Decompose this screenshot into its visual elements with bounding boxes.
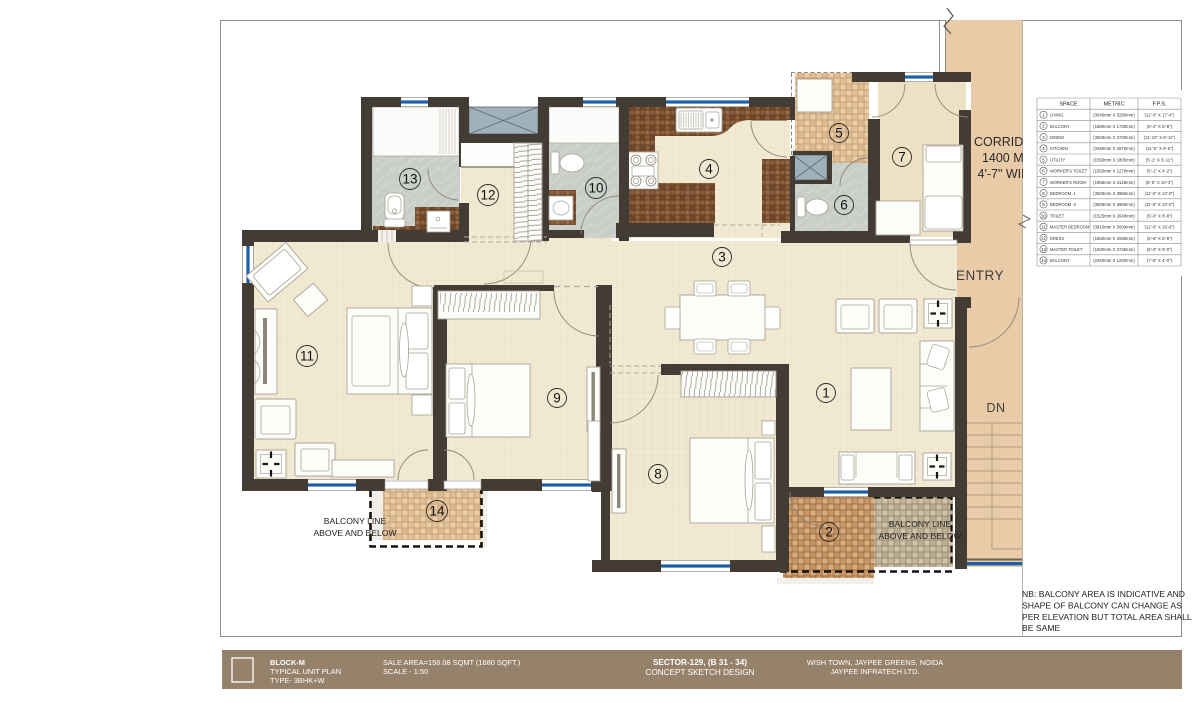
svg-text:DINING: DINING <box>1050 135 1064 140</box>
svg-text:NB: BALCONY AREA IS INDICATIVE: NB: BALCONY AREA IS INDICATIVE AND <box>1022 589 1185 599</box>
svg-text:MASTER BEDROOM: MASTER BEDROOM <box>1050 225 1090 230</box>
svg-text:(6'-0" X 9'-0"): (6'-0" X 9'-0") <box>1147 247 1173 252</box>
svg-text:(1880mm X 1730mm): (1880mm X 1730mm) <box>1093 124 1135 129</box>
svg-text:(5'-5" X 6'-9"): (5'-5" X 6'-9") <box>1147 236 1173 241</box>
svg-text:SALE AREA=156.08 SQMT (1680 SQ: SALE AREA=156.08 SQMT (1680 SQFT.) <box>383 658 520 667</box>
svg-text:(5'-1" X 5'-11"): (5'-1" X 5'-11") <box>1146 157 1174 162</box>
svg-text:(5'-1" X 4'-2"): (5'-1" X 4'-2") <box>1147 169 1173 174</box>
svg-text:BE SAME: BE SAME <box>1022 623 1060 633</box>
svg-text:(6'-2" X 5'-8"): (6'-2" X 5'-8") <box>1147 124 1173 129</box>
svg-text:(1830mm X 2745mm): (1830mm X 2745mm) <box>1093 247 1135 252</box>
svg-text:TYPICAL UNIT PLAN: TYPICAL UNIT PLAN <box>270 667 341 676</box>
svg-text:14: 14 <box>429 504 445 519</box>
svg-text:(1650mm X 2060mm): (1650mm X 2060mm) <box>1093 236 1135 241</box>
svg-text:(3605mm X 2720mm): (3605mm X 2720mm) <box>1093 135 1135 140</box>
svg-text:KITCHEN: KITCHEN <box>1050 146 1068 151</box>
svg-text:10: 10 <box>1041 213 1046 218</box>
svg-text:2: 2 <box>825 525 833 540</box>
svg-text:7: 7 <box>898 150 906 165</box>
svg-text:ABOVE AND BELOW: ABOVE AND BELOW <box>878 531 962 541</box>
svg-text:12: 12 <box>480 188 495 203</box>
svg-text:ABOVE AND BELOW: ABOVE AND BELOW <box>313 528 397 538</box>
svg-text:(5'-0" X 8'-8"): (5'-0" X 8'-8") <box>1147 213 1173 218</box>
svg-text:(11'-5" X 9'-5"): (11'-5" X 9'-5") <box>1146 146 1174 151</box>
svg-text:SPACE: SPACE <box>1059 102 1078 108</box>
svg-text:5: 5 <box>835 126 843 141</box>
svg-text:TOILET: TOILET <box>1050 213 1065 218</box>
svg-text:3: 3 <box>718 250 726 265</box>
svg-text:(3810mm X 5000mm): (3810mm X 5000mm) <box>1093 225 1135 230</box>
svg-text:BEDROOM -1: BEDROOM -1 <box>1050 191 1077 196</box>
svg-text:8: 8 <box>654 467 662 482</box>
svg-text:11: 11 <box>1041 225 1046 230</box>
svg-text:BALCONY LINE: BALCONY LINE <box>324 516 387 526</box>
svg-text:11: 11 <box>300 349 314 364</box>
svg-text:(12'-0" X 17'-4"): (12'-0" X 17'-4") <box>1144 113 1175 118</box>
svg-text:F.P.S.: F.P.S. <box>1153 102 1167 108</box>
svg-text:MASTER TOILET: MASTER TOILET <box>1050 247 1083 252</box>
svg-text:(11'-6" X 13'-0"): (11'-6" X 13'-0") <box>1145 202 1175 207</box>
svg-text:BLOCK-M: BLOCK-M <box>270 658 305 667</box>
svg-text:WORKER'S TOILET: WORKER'S TOILET <box>1050 169 1088 174</box>
svg-text:JAYPEE INFRATECH LTD.: JAYPEE INFRATECH LTD. <box>830 667 919 676</box>
svg-text:CONCEPT SKETCH DESIGN: CONCEPT SKETCH DESIGN <box>645 668 754 677</box>
svg-text:SCALE - 1:50: SCALE - 1:50 <box>383 667 428 676</box>
svg-text:6: 6 <box>840 198 848 213</box>
svg-text:WORKER'S ROOM: WORKER'S ROOM <box>1050 180 1086 185</box>
svg-text:1: 1 <box>822 386 830 401</box>
svg-text:(1955mm X 3125mm): (1955mm X 3125mm) <box>1093 180 1135 185</box>
svg-text:SHAPE OF BALCONY CAN CHANGE AS: SHAPE OF BALCONY CAN CHANGE AS <box>1022 600 1182 610</box>
svg-text:DN: DN <box>986 401 1005 415</box>
svg-text:10: 10 <box>588 181 603 196</box>
svg-text:UTILITY: UTILITY <box>1050 157 1066 162</box>
svg-text:12: 12 <box>1041 236 1046 241</box>
svg-text:(6'-5" X 10'-3"): (6'-5" X 10'-3") <box>1146 180 1174 185</box>
svg-text:(11'-10" X 8'-11"): (11'-10" X 8'-11") <box>1144 135 1176 140</box>
svg-text:WISH TOWN, JAYPEE GREENS, NOID: WISH TOWN, JAYPEE GREENS, NOIDA <box>807 658 943 667</box>
svg-text:13: 13 <box>402 172 417 187</box>
svg-text:DRESS: DRESS <box>1050 236 1064 241</box>
svg-text:TYPE- 3BHK+W: TYPE- 3BHK+W <box>270 676 324 685</box>
svg-text:(11'-6" X 13'-0"): (11'-6" X 13'-0") <box>1145 191 1175 196</box>
svg-text:(1525mm X 2640mm): (1525mm X 2640mm) <box>1093 213 1135 218</box>
svg-text:(2260mm X 1220mm): (2260mm X 1220mm) <box>1093 258 1135 263</box>
svg-text:METRIC: METRIC <box>1103 102 1124 108</box>
svg-text:13: 13 <box>1041 247 1046 252</box>
svg-text:(3505mm X 3965mm): (3505mm X 3965mm) <box>1093 191 1135 196</box>
svg-text:PER ELEVATION BUT TOTAL AREA S: PER ELEVATION BUT TOTAL AREA SHALL <box>1022 612 1192 622</box>
svg-text:(3640mm X 5285mm): (3640mm X 5285mm) <box>1093 113 1135 118</box>
svg-text:BALCONY LINE: BALCONY LINE <box>889 519 952 529</box>
svg-text:BEDROOM -2: BEDROOM -2 <box>1050 202 1077 207</box>
svg-text:(7'-5" X 4'-0"): (7'-5" X 4'-0") <box>1147 258 1173 263</box>
svg-text:(12'-6" X 16'-6"): (12'-6" X 16'-6") <box>1144 225 1175 230</box>
svg-text:BALCONY: BALCONY <box>1050 124 1070 129</box>
svg-text:(1550mm X 1805mm): (1550mm X 1805mm) <box>1093 157 1135 162</box>
svg-text:(3480mm X 2870mm): (3480mm X 2870mm) <box>1093 146 1135 151</box>
svg-text:14: 14 <box>1041 258 1046 263</box>
svg-text:ENTRY: ENTRY <box>956 268 1004 283</box>
svg-text:BALCONY: BALCONY <box>1050 258 1070 263</box>
svg-text:LIVING: LIVING <box>1050 113 1063 118</box>
svg-text:(3505mm X 3965mm): (3505mm X 3965mm) <box>1093 202 1135 207</box>
svg-text:(1550mm X 1270mm): (1550mm X 1270mm) <box>1093 169 1135 174</box>
svg-text:4: 4 <box>705 162 713 177</box>
svg-text:SECTOR-129, (B 31 - 34): SECTOR-129, (B 31 - 34) <box>653 658 747 667</box>
svg-text:9: 9 <box>553 391 561 406</box>
